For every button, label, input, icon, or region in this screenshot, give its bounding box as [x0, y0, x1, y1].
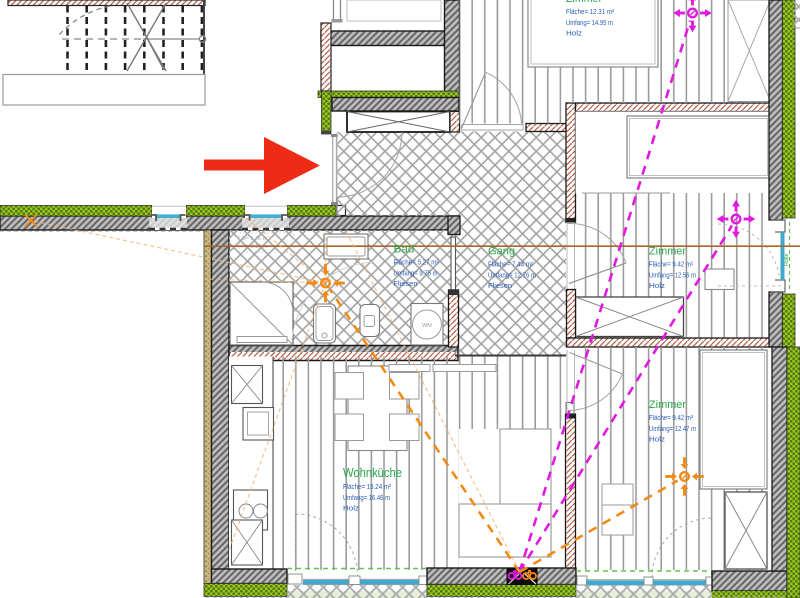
svg-text:Umfang= 14.95 m: Umfang= 14.95 m [566, 18, 613, 27]
svg-text:Umfang= 16.46 m: Umfang= 16.46 m [343, 493, 390, 502]
svg-text:Fläche= 9.42 m²: Fläche= 9.42 m² [649, 260, 693, 269]
svg-text:Fläche= 7.44 m²: Fläche= 7.44 m² [488, 260, 533, 269]
svg-text:Umfang= 9.75 m: Umfang= 9.75 m [394, 268, 438, 277]
svg-text:Fliesen: Fliesen [488, 281, 512, 290]
svg-text:Fläche= 12.31 m²: Fläche= 12.31 m² [566, 7, 614, 16]
svg-text:Holz: Holz [649, 435, 665, 444]
svg-text:Zimmer: Zimmer [649, 246, 686, 258]
svg-text:Holz: Holz [649, 281, 665, 290]
svg-text:WM: WM [422, 323, 432, 329]
svg-text:Umfang= 12.47 m: Umfang= 12.47 m [649, 424, 696, 433]
svg-text:B= 1.76 m: B= 1.76 m [242, 236, 268, 242]
svg-text:Bad: Bad [394, 244, 415, 256]
svg-text:Fliesen: Fliesen [394, 279, 418, 288]
svg-text:Umfang= 12.76 m: Umfang= 12.76 m [488, 270, 536, 279]
svg-text:Fläche= 5.27 m²: Fläche= 5.27 m² [394, 258, 439, 267]
svg-text:Zimmer: Zimmer [566, 0, 602, 5]
svg-text:Fläche= 9.42 m²: Fläche= 9.42 m² [649, 413, 693, 422]
svg-text:Holz: Holz [566, 29, 582, 38]
svg-text:Holz: Holz [343, 504, 359, 513]
svg-text:Fläche= 15.24 m²: Fläche= 15.24 m² [343, 482, 391, 491]
svg-text:Gang: Gang [488, 246, 515, 258]
svg-text:Umfang= 12.56 m: Umfang= 12.56 m [649, 270, 696, 279]
svg-text:Wohnküche: Wohnküche [343, 465, 402, 480]
svg-text:Zimmer: Zimmer [649, 399, 686, 411]
svg-text:Rolle: Rolle [784, 253, 790, 266]
